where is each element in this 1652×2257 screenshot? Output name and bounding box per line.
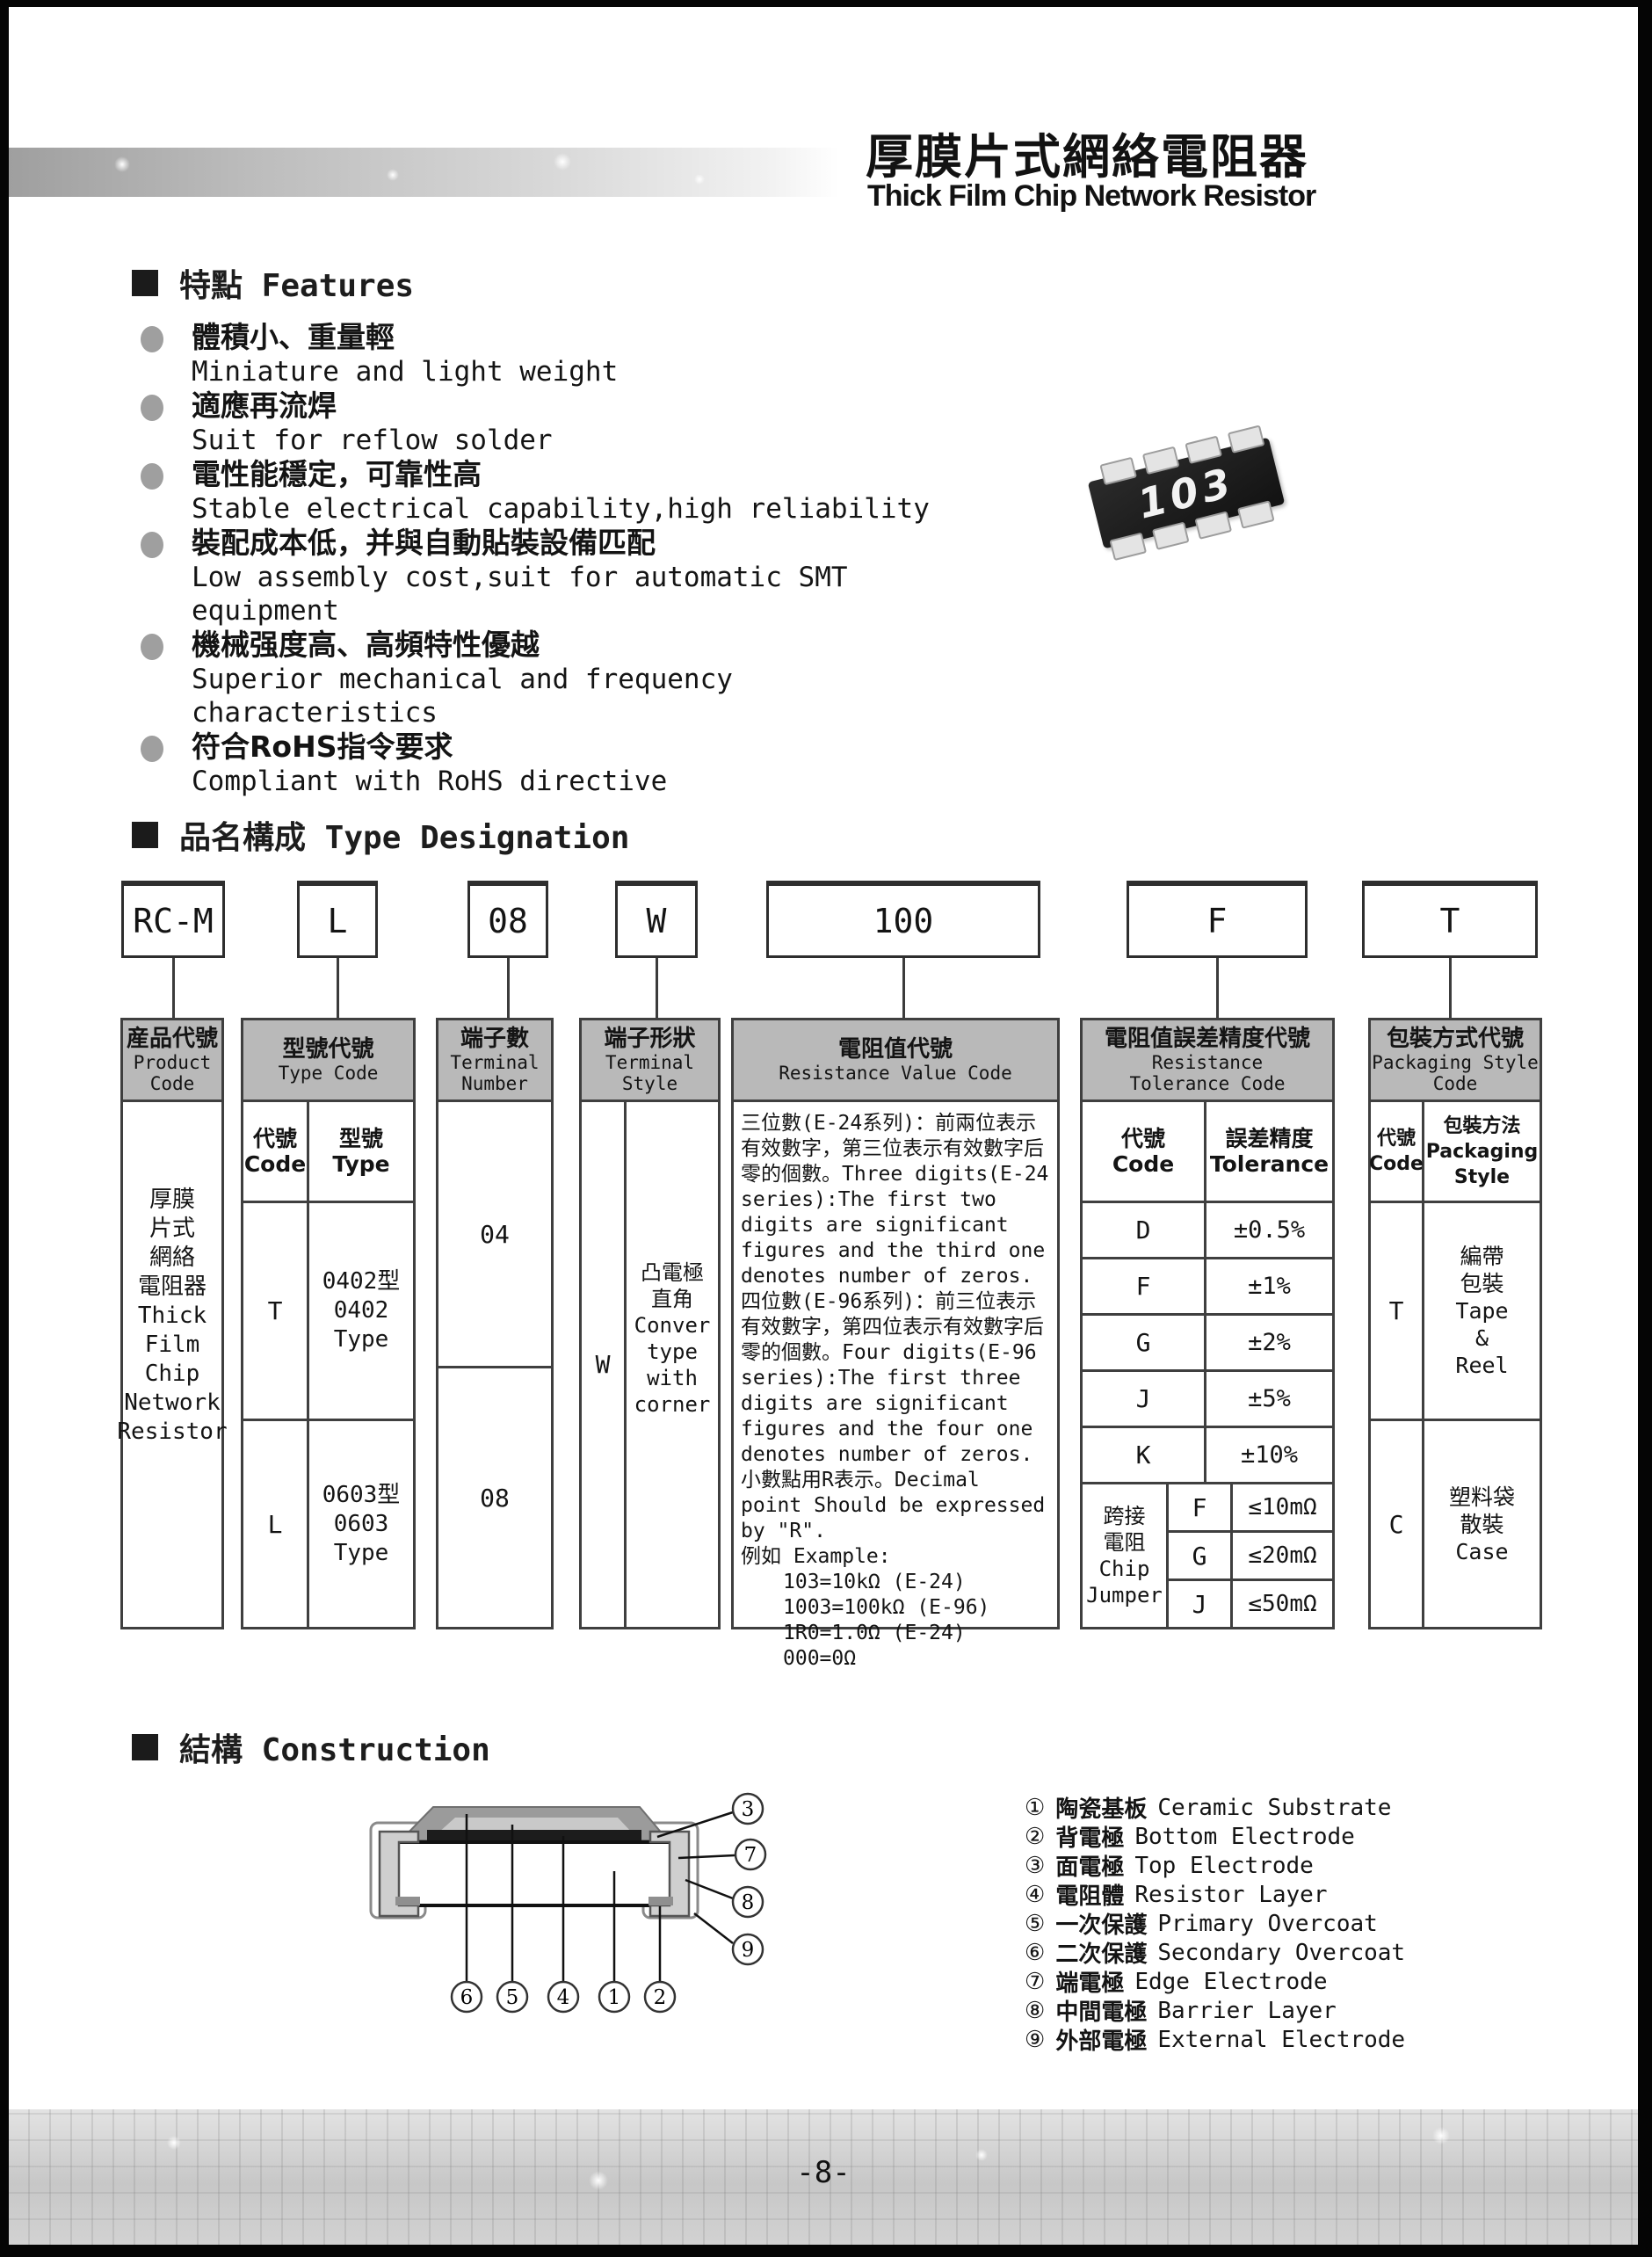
table-column-resistance-value: 電阻值代號 Resistance Value Code 三位數(E-24系列)：… bbox=[731, 1018, 1060, 1629]
table-row: J ±5% bbox=[1083, 1372, 1332, 1428]
bottom-electrode-left bbox=[395, 1897, 420, 1905]
list-item: 符合RoHS指令要求 Compliant with RoHS directive bbox=[141, 729, 984, 798]
sub-header-code: 代號 Code bbox=[1371, 1102, 1424, 1201]
feature-text-en: Compliant with RoHS directive bbox=[192, 765, 984, 798]
code-box-type: L bbox=[297, 881, 378, 958]
sub-header-code: 代號 Code bbox=[1083, 1102, 1206, 1201]
jumper-value-cell: ≤10mΩ bbox=[1233, 1484, 1332, 1530]
construction-legend: ① 陶瓷基板 Ceramic Substrate ② 背電極 Bottom El… bbox=[1025, 1793, 1405, 2054]
chip-network-resistor-photo: 103 bbox=[1083, 413, 1302, 598]
feature-text-en: Miniature and light weight bbox=[192, 355, 984, 388]
tolerance-code-cell: G bbox=[1083, 1316, 1206, 1369]
legend-en: Barrier Layer bbox=[1157, 1998, 1337, 2024]
code-box-product: RC-M bbox=[121, 881, 225, 958]
bottom-electrode-right bbox=[648, 1897, 673, 1905]
table-column-terminal-style: 端子形狀 Terminal Style W 凸電極 直角 Conver type… bbox=[579, 1018, 721, 1629]
callout-number: 2 bbox=[654, 1986, 667, 2009]
callout-number: 4 bbox=[557, 1986, 570, 2009]
connector-line bbox=[172, 958, 175, 1018]
list-item: ③ 面電極 Top Electrode bbox=[1025, 1851, 1405, 1880]
header-cn: 型號代號 bbox=[282, 1036, 373, 1063]
feature-text-cn: 機械强度高、高頻特性優越 bbox=[192, 628, 984, 663]
sub-header-row: 代號 Code 型號 Type bbox=[243, 1102, 413, 1203]
resistance-paragraph-decimal: 小數點用R表示。Decimal point Should be expresse… bbox=[741, 1468, 1050, 1544]
bullet-icon bbox=[141, 736, 163, 762]
code-box-packaging: T bbox=[1362, 881, 1538, 958]
feature-text-cn: 體積小、重量輕 bbox=[192, 320, 984, 355]
sub-header-tolerance: 誤差精度 Tolerance bbox=[1206, 1102, 1332, 1201]
feature-text-en: Superior mechanical and frequency charac… bbox=[192, 663, 984, 729]
column-header: 電阻值誤差精度代號 Resistance Tolerance Code bbox=[1083, 1020, 1332, 1102]
header-en: Resistance Value Code bbox=[779, 1063, 1012, 1084]
sparkle bbox=[694, 174, 705, 185]
callout-number: 9 bbox=[742, 1939, 755, 1962]
connector-line bbox=[902, 958, 905, 1018]
legend-en: Edge Electrode bbox=[1134, 1969, 1327, 1995]
callout-number: 3 bbox=[742, 1798, 755, 1821]
feature-text-en: Low assembly cost,suit for automatic SMT… bbox=[192, 561, 984, 628]
list-item: 電性能穩定，可靠性高 Stable electrical capability,… bbox=[141, 457, 984, 526]
tolerance-code-cell: J bbox=[1083, 1372, 1206, 1426]
type-code-cell: T bbox=[243, 1203, 309, 1419]
type-name-cell: 0603型 0603 Type bbox=[309, 1421, 413, 1627]
feature-text-cn: 適應再流焊 bbox=[192, 388, 984, 424]
ceramic-substrate-shape bbox=[394, 1842, 675, 1905]
page-title-chinese: 厚膜片式網絡電阻器 bbox=[866, 118, 1308, 187]
header-cn: 端子形狀 bbox=[604, 1026, 695, 1052]
leader-line bbox=[694, 1913, 733, 1943]
table-row: F ±1% bbox=[1083, 1259, 1332, 1316]
callout-number: 7 bbox=[744, 1844, 757, 1867]
table-row: T 0402型 0402 Type bbox=[243, 1203, 413, 1421]
legend-cn: 面電極 bbox=[1055, 1849, 1124, 1882]
tolerance-value-cell: ±0.5% bbox=[1206, 1203, 1332, 1257]
circled-number-icon: ⑨ bbox=[1025, 2027, 1045, 2053]
jumper-code-cell: G bbox=[1169, 1533, 1233, 1578]
legend-cn: 中間電極 bbox=[1055, 1994, 1147, 2027]
construction-section-heading: 結構 Construction bbox=[132, 1724, 490, 1770]
list-item: ⑤ 一次保護 Primary Overcoat bbox=[1025, 1909, 1405, 1938]
header-en: Terminal Number bbox=[450, 1052, 539, 1094]
circled-number-icon: ② bbox=[1025, 1824, 1045, 1850]
table-row: K ±10% bbox=[1083, 1428, 1332, 1484]
sparkle bbox=[1432, 2127, 1450, 2145]
callout-number: 8 bbox=[742, 1891, 755, 1914]
legend-cn: 端電極 bbox=[1055, 1965, 1124, 1998]
table-row: C 塑料袋 散裝 Case bbox=[1371, 1421, 1540, 1627]
table-column-product-code: 産品代號 Product Code 厚膜 片式 網絡 電阻器 Thick Fil… bbox=[120, 1018, 224, 1629]
terminal-number-cell: 04 bbox=[438, 1102, 551, 1368]
resistance-examples: 103=10kΩ (E-24) 1003=100kΩ (E-96) 1R0=1.… bbox=[741, 1570, 1050, 1672]
feature-text-cn: 符合RoHS指令要求 bbox=[192, 729, 984, 765]
circled-number-icon: ① bbox=[1025, 1795, 1045, 1821]
type-designation-heading-label: 品名構成 Type Designation bbox=[179, 812, 629, 858]
bullet-icon bbox=[141, 634, 163, 660]
features-heading-label: 特點 Features bbox=[179, 260, 414, 306]
packaging-code-cell: T bbox=[1371, 1203, 1424, 1419]
resistor-layer-shape bbox=[427, 1830, 641, 1842]
type-name-cell: 0402型 0402 Type bbox=[309, 1203, 413, 1419]
chip-jumper-label: 跨接 電阻 Chip Jumper bbox=[1083, 1484, 1169, 1627]
table-column-packaging: 包裝方式代號 Packaging Style Code 代號 Code 包裝方法… bbox=[1368, 1018, 1542, 1629]
sub-header-type: 型號 Type bbox=[309, 1102, 413, 1201]
legend-en: Top Electrode bbox=[1134, 1853, 1314, 1879]
table-column-terminal-number: 端子數 Terminal Number 04 08 bbox=[436, 1018, 554, 1629]
leader-line bbox=[657, 1812, 733, 1837]
column-header: 包裝方式代號 Packaging Style Code bbox=[1371, 1020, 1540, 1102]
list-item: ⑧ 中間電極 Barrier Layer bbox=[1025, 1996, 1405, 2025]
circled-number-icon: ③ bbox=[1025, 1853, 1045, 1879]
tolerance-value-cell: ±1% bbox=[1206, 1259, 1332, 1313]
jumper-value-cell: ≤20mΩ bbox=[1233, 1533, 1332, 1578]
construction-heading-label: 結構 Construction bbox=[179, 1724, 490, 1770]
table-row: L 0603型 0603 Type bbox=[243, 1421, 413, 1627]
resistance-value-description: 三位數(E-24系列)：前兩位表示有效數字，第三位表示有效數字后零的個數。Thr… bbox=[734, 1102, 1057, 1672]
tolerance-code-cell: K bbox=[1083, 1428, 1206, 1482]
jumper-value-cell: ≤50mΩ bbox=[1233, 1581, 1332, 1627]
list-item: 適應再流焊 Suit for reflow solder bbox=[141, 388, 984, 457]
list-item: 機械强度高、高頻特性優越 Superior mechanical and fre… bbox=[141, 628, 984, 729]
connector-line bbox=[656, 958, 658, 1018]
connector-line bbox=[337, 958, 339, 1018]
list-item: ⑨ 外部電極 External Electrode bbox=[1025, 2025, 1405, 2054]
legend-en: Resistor Layer bbox=[1134, 1882, 1327, 1908]
connector-line bbox=[1449, 958, 1452, 1018]
connector-line bbox=[1216, 958, 1219, 1018]
feature-text-cn: 裝配成本低，并與自動貼裝設備匹配 bbox=[192, 526, 984, 561]
list-item: ④ 電阻體 Resistor Layer bbox=[1025, 1880, 1405, 1909]
circled-number-icon: ⑦ bbox=[1025, 1969, 1045, 1995]
terminal-style-code-cell: W bbox=[582, 1102, 627, 1627]
sub-header-code: 代號 Code bbox=[243, 1102, 309, 1201]
legend-cn: 一次保護 bbox=[1055, 1907, 1147, 1940]
sparkle bbox=[387, 169, 399, 181]
header-en: Packaging Style Code bbox=[1372, 1052, 1539, 1094]
feature-text-en: Stable electrical capability,high reliab… bbox=[192, 492, 984, 526]
tolerance-value-cell: ±5% bbox=[1206, 1372, 1332, 1426]
tolerance-code-cell: F bbox=[1083, 1259, 1206, 1313]
header-cn: 電阻值代號 bbox=[838, 1036, 953, 1063]
table-row: W 凸電極 直角 Conver type with corner bbox=[582, 1102, 718, 1627]
callout-number: 6 bbox=[460, 1986, 474, 2009]
table-row: T 編帶 包裝 Tape & Reel bbox=[1371, 1203, 1540, 1421]
sub-header-row: 代號 Code 誤差精度 Tolerance bbox=[1083, 1102, 1332, 1203]
table-row: J ≤50mΩ bbox=[1169, 1578, 1332, 1627]
resistance-paragraph-example-label: 例如 Example: bbox=[741, 1544, 1050, 1570]
page-number: -8- bbox=[9, 2155, 1638, 2190]
header-en: Type Code bbox=[279, 1063, 379, 1084]
section-square-icon bbox=[132, 1734, 158, 1760]
feature-text-en: Suit for reflow solder bbox=[192, 424, 984, 457]
header-cn: 端子數 bbox=[460, 1026, 529, 1052]
circled-number-icon: ⑥ bbox=[1025, 1940, 1045, 1966]
table-row: F ≤10mΩ bbox=[1169, 1484, 1332, 1530]
type-code-cell: L bbox=[243, 1421, 309, 1627]
legend-en: Bottom Electrode bbox=[1134, 1824, 1354, 1850]
datasheet-page: 厚膜片式網絡電阻器 Thick Film Chip Network Resist… bbox=[9, 7, 1638, 2245]
section-square-icon bbox=[132, 270, 158, 296]
legend-cn: 外部電極 bbox=[1055, 2023, 1147, 2056]
resistance-paragraph-e24: 三位數(E-24系列)：前兩位表示有效數字，第三位表示有效數字后零的個數。Thr… bbox=[741, 1111, 1050, 1289]
legend-cn: 二次保護 bbox=[1055, 1936, 1147, 1969]
feature-text-cn: 電性能穩定，可靠性高 bbox=[192, 457, 984, 492]
resistance-paragraph-e96: 四位數(E-96系列)：前三位表示有效數字，第四位表示有效數字后零的個數。Fou… bbox=[741, 1289, 1050, 1468]
packaging-code-cell: C bbox=[1371, 1421, 1424, 1627]
list-item: 裝配成本低，并與自動貼裝設備匹配 Low assembly cost,suit … bbox=[141, 526, 984, 628]
product-description-cell: 厚膜 片式 網絡 電阻器 Thick Film Chip Network Res… bbox=[123, 1102, 221, 1627]
code-box-tolerance: F bbox=[1127, 881, 1308, 958]
table-row: D ±0.5% bbox=[1083, 1203, 1332, 1259]
header-cn: 電阻值誤差精度代號 bbox=[1105, 1026, 1310, 1052]
legend-en: External Electrode bbox=[1157, 2027, 1405, 2053]
sparkle bbox=[114, 156, 130, 172]
column-header: 端子數 Terminal Number bbox=[438, 1020, 551, 1102]
list-item: ② 背電極 Bottom Electrode bbox=[1025, 1822, 1405, 1851]
column-header: 端子形狀 Terminal Style bbox=[582, 1020, 718, 1102]
tolerance-value-cell: ±10% bbox=[1206, 1428, 1332, 1482]
circled-number-icon: ⑤ bbox=[1025, 1911, 1045, 1937]
callout-number: 1 bbox=[608, 1986, 621, 2009]
bullet-icon bbox=[141, 532, 163, 558]
packaging-style-cell: 編帶 包裝 Tape & Reel bbox=[1424, 1203, 1540, 1419]
terminal-style-desc-cell: 凸電極 直角 Conver type with corner bbox=[627, 1102, 718, 1627]
table-column-tolerance: 電阻值誤差精度代號 Resistance Tolerance Code 代號 C… bbox=[1080, 1018, 1335, 1629]
column-header: 型號代號 Type Code bbox=[243, 1020, 413, 1102]
packaging-style-cell: 塑料袋 散裝 Case bbox=[1424, 1421, 1540, 1627]
bullet-icon bbox=[141, 326, 163, 352]
bullet-icon bbox=[141, 463, 163, 490]
callout-number: 5 bbox=[506, 1986, 519, 2009]
circled-number-icon: ④ bbox=[1025, 1882, 1045, 1908]
features-section-heading: 特點 Features bbox=[132, 260, 414, 306]
circled-number-icon: ⑧ bbox=[1025, 1998, 1045, 2024]
chip-jumper-rows: F ≤10mΩ G ≤20mΩ J ≤50mΩ bbox=[1169, 1484, 1332, 1627]
legend-en: Primary Overcoat bbox=[1157, 1911, 1377, 1937]
legend-cn: 陶瓷基板 bbox=[1055, 1791, 1147, 1824]
page-title-english: Thick Film Chip Network Resistor bbox=[867, 179, 1315, 214]
section-square-icon bbox=[132, 822, 158, 848]
bullet-icon bbox=[141, 395, 163, 421]
header-en: Terminal Style bbox=[605, 1052, 694, 1094]
list-item: 體積小、重量輕 Miniature and light weight bbox=[141, 320, 984, 388]
construction-diagram: 3 7 8 9 6 5 4 1 2 bbox=[350, 1788, 807, 2078]
header-cn: 産品代號 bbox=[127, 1026, 218, 1052]
list-item: ⑦ 端電極 Edge Electrode bbox=[1025, 1967, 1405, 1996]
table-row: G ≤20mΩ bbox=[1169, 1530, 1332, 1578]
table-row: G ±2% bbox=[1083, 1316, 1332, 1372]
tolerance-value-cell: ±2% bbox=[1206, 1316, 1332, 1369]
header-en: Resistance Tolerance Code bbox=[1129, 1052, 1285, 1094]
column-header: 産品代號 Product Code bbox=[123, 1020, 221, 1102]
sub-header-style: 包裝方法 Packaging Style bbox=[1424, 1102, 1540, 1201]
tolerance-code-cell: D bbox=[1083, 1203, 1206, 1257]
features-list: 體積小、重量輕 Miniature and light weight 適應再流焊… bbox=[141, 320, 984, 798]
legend-cn: 背電極 bbox=[1055, 1820, 1124, 1853]
header-gradient-band bbox=[9, 148, 839, 197]
sparkle bbox=[554, 153, 571, 171]
legend-en: Secondary Overcoat bbox=[1157, 1940, 1405, 1966]
header-en: Product Code bbox=[134, 1052, 212, 1094]
header-cn: 包裝方式代號 bbox=[1387, 1026, 1524, 1052]
list-item: ⑥ 二次保護 Secondary Overcoat bbox=[1025, 1938, 1405, 1967]
type-designation-section-heading: 品名構成 Type Designation bbox=[132, 812, 629, 858]
sparkle bbox=[167, 2136, 181, 2150]
sub-header-row: 代號 Code 包裝方法 Packaging Style bbox=[1371, 1102, 1540, 1203]
chip-jumper-group: 跨接 電阻 Chip Jumper F ≤10mΩ G ≤20mΩ J ≤50m… bbox=[1083, 1484, 1332, 1627]
legend-en: Ceramic Substrate bbox=[1157, 1795, 1391, 1821]
connector-line bbox=[507, 958, 510, 1018]
code-box-terminal-style: W bbox=[615, 881, 698, 958]
code-box-terminal-number: 08 bbox=[467, 881, 548, 958]
leader-line bbox=[685, 1880, 733, 1898]
code-box-resistance-value: 100 bbox=[766, 881, 1040, 958]
terminal-number-cell: 08 bbox=[438, 1368, 551, 1627]
jumper-code-cell: J bbox=[1169, 1581, 1233, 1627]
jumper-code-cell: F bbox=[1169, 1484, 1233, 1530]
column-header: 電阻值代號 Resistance Value Code bbox=[734, 1020, 1057, 1102]
table-column-type-code: 型號代號 Type Code 代號 Code 型號 Type T 0402型 0… bbox=[241, 1018, 416, 1629]
legend-cn: 電阻體 bbox=[1055, 1878, 1124, 1911]
list-item: ① 陶瓷基板 Ceramic Substrate bbox=[1025, 1793, 1405, 1822]
chip-body: 103 bbox=[1088, 438, 1286, 549]
